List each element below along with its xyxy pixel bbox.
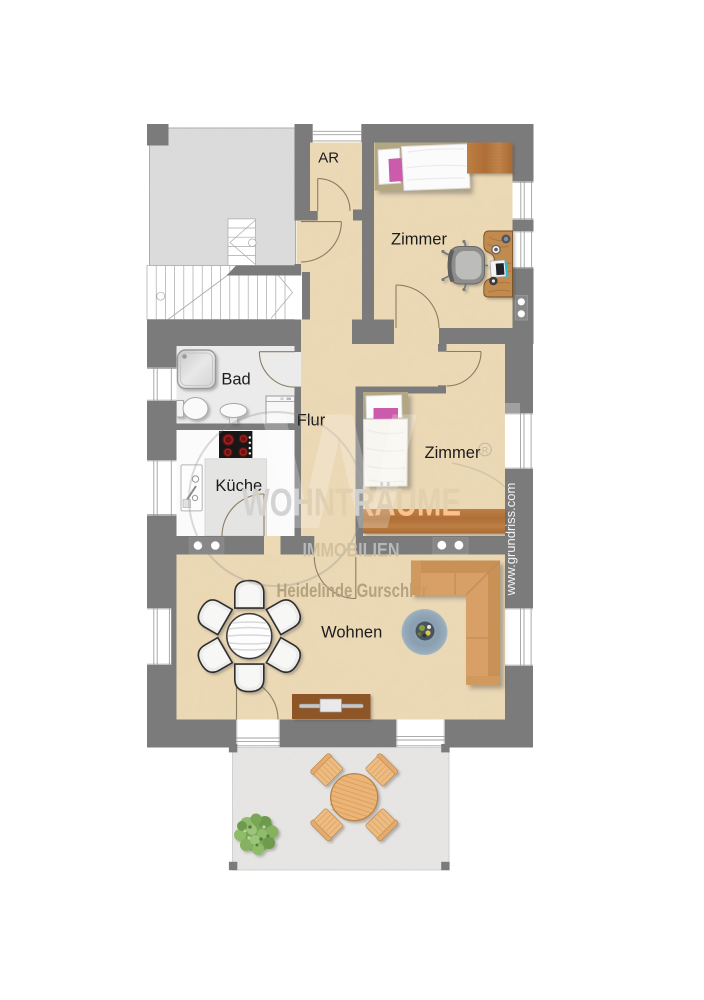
svg-text:Zimmer: Zimmer — [425, 444, 481, 462]
svg-text:Wohnen: Wohnen — [321, 624, 382, 642]
svg-text:Zimmer: Zimmer — [391, 231, 447, 249]
svg-text:W: W — [261, 379, 417, 563]
svg-text:R: R — [482, 446, 489, 456]
svg-text:www.grundriss.com: www.grundriss.com — [503, 483, 518, 597]
svg-text:WOHNTRÄUME: WOHNTRÄUME — [242, 482, 461, 525]
svg-text:AR: AR — [318, 150, 339, 167]
svg-text:Heidelinde Gurschler: Heidelinde Gurschler — [277, 580, 428, 602]
svg-text:Bad: Bad — [221, 371, 250, 389]
svg-text:IMMOBILIEN: IMMOBILIEN — [303, 541, 400, 562]
